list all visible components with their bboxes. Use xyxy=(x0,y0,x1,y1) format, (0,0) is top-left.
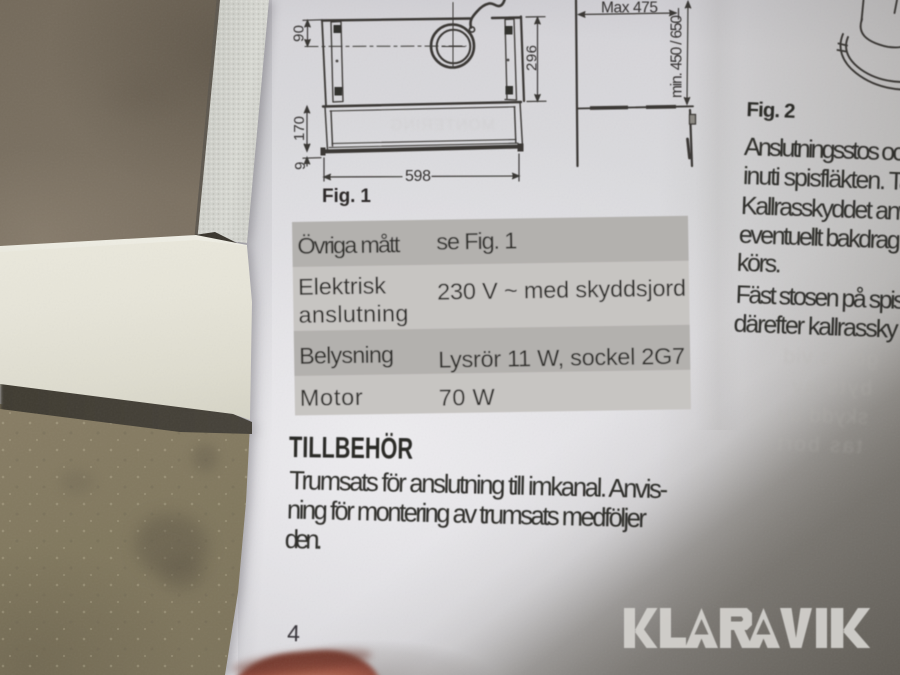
svg-text:anslutning: anslutning xyxy=(298,300,408,328)
svg-text:byts av: byts av xyxy=(791,374,872,400)
svg-text:min. 450 / 650: min. 450 / 650 xyxy=(669,15,686,98)
svg-text:Fig. 1: Fig. 1 xyxy=(322,186,371,207)
svg-text:Övriga mått: Övriga mått xyxy=(297,231,401,259)
svg-text:90: 90 xyxy=(291,25,308,42)
svg-text:den.: den. xyxy=(284,526,323,555)
svg-text:296: 296 xyxy=(524,45,541,71)
svg-text:skydd av: skydd av xyxy=(777,403,868,429)
svg-text:TILLBEHÖR: TILLBEHÖR xyxy=(289,431,414,466)
svg-text:tas bort: tas bort xyxy=(777,432,863,458)
svg-text:Elektrisk: Elektrisk xyxy=(298,273,387,300)
svg-text:Max 475: Max 475 xyxy=(601,0,658,17)
svg-text:170: 170 xyxy=(291,116,308,141)
svg-text:göras vid: göras vid xyxy=(783,345,879,371)
svg-text:4: 4 xyxy=(287,620,301,646)
svg-text:körs.: körs. xyxy=(736,249,782,279)
svg-text:9: 9 xyxy=(292,162,309,170)
svg-text:MONTERING: MONTERING xyxy=(390,117,495,134)
svg-text:Motor: Motor xyxy=(300,384,364,411)
svg-text:inuti spisfläkten. Ta: inuti spisfläkten. Ta xyxy=(743,162,900,196)
svg-text:230 V ~ med skyddsjord: 230 V ~ med skyddsjord xyxy=(437,275,686,305)
svg-text:Lysrör 11 W, sockel 2G7: Lysrör 11 W, sockel 2G7 xyxy=(438,343,685,373)
svg-text:Fig. 2: Fig. 2 xyxy=(746,98,796,123)
svg-text:Belysning: Belysning xyxy=(299,341,394,368)
svg-text:se Fig. 1: se Fig. 1 xyxy=(436,227,517,254)
svg-text:därefter kallrassky: därefter kallrassky xyxy=(733,310,899,344)
svg-text:598: 598 xyxy=(405,168,431,185)
svg-text:70 W: 70 W xyxy=(439,384,496,411)
